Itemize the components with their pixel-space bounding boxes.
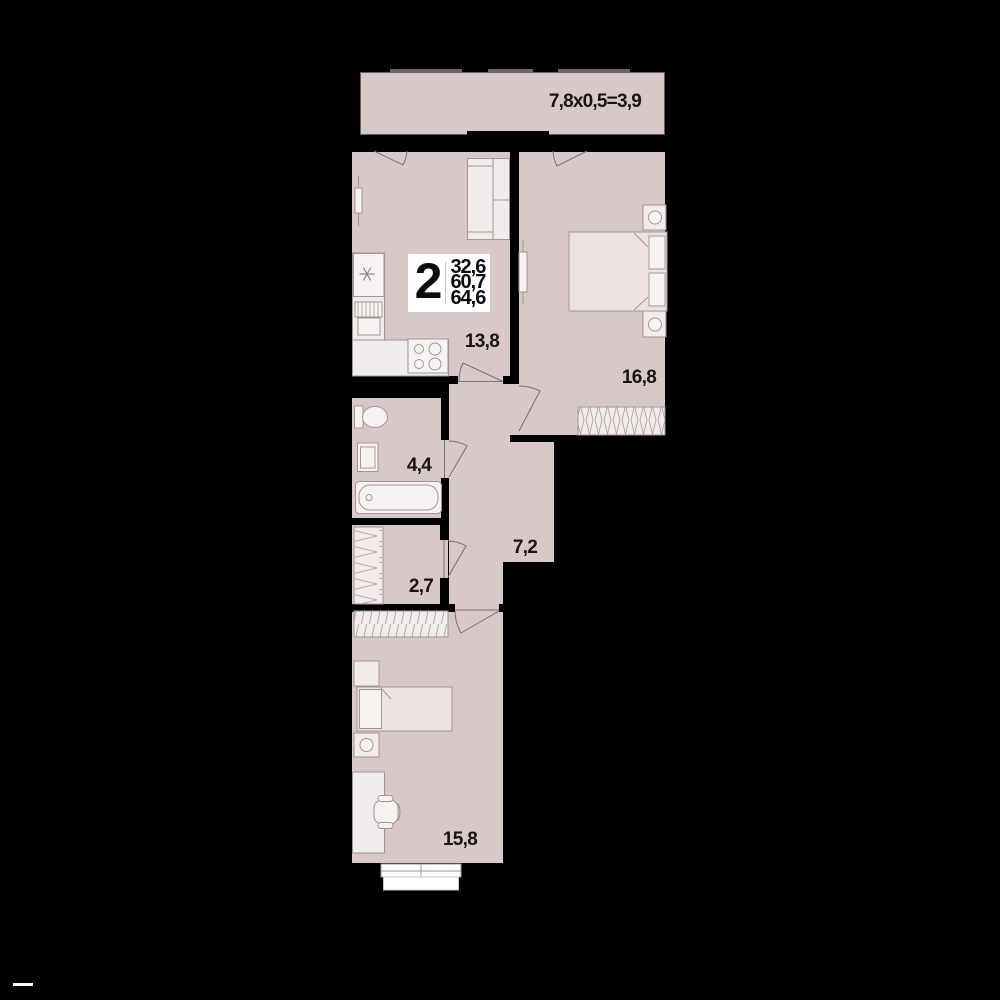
door-arc-bedroom-balcony [553, 151, 587, 166]
scale-mark [13, 983, 33, 986]
wardrobe-hatch [578, 407, 665, 435]
furniture-layer [0, 0, 1000, 1000]
door-arc-storage [448, 541, 466, 577]
kitchen-sink [354, 254, 385, 297]
door-arc-kitchen [459, 363, 502, 381]
pillow [360, 690, 382, 729]
room-label-kitchen: 13,8 [465, 331, 499, 353]
room-label-bedroom: 16,8 [622, 367, 656, 389]
toilet-tank [355, 406, 364, 428]
badge-divider [445, 262, 446, 304]
storage-wardrobe-hatch [354, 527, 383, 604]
room-label-living: 15,8 [443, 829, 477, 851]
nightstand [354, 661, 379, 686]
room-label-hallway: 7,2 [513, 537, 537, 559]
radiator [519, 252, 527, 292]
pillow [649, 273, 665, 306]
stove [408, 339, 448, 373]
hall-wardrobe-hatch [354, 611, 448, 637]
door-arc-living [455, 611, 499, 633]
lamp-icon [649, 211, 662, 224]
door-arc-kitchen-balcony [374, 151, 407, 165]
room-count: 2 [413, 258, 443, 308]
chair-armrest [378, 823, 393, 829]
room-label-bathroom: 4,4 [407, 455, 431, 477]
room-label-storage: 2,7 [409, 576, 433, 598]
chair-armrest [378, 796, 393, 802]
lamp-icon [360, 739, 373, 752]
radiator [355, 188, 362, 213]
bathtub [356, 482, 442, 514]
chair [374, 800, 398, 824]
door-threshold-lines [444, 382, 503, 611]
kitchen-appliance-hatch [355, 302, 382, 317]
sofa [468, 159, 510, 240]
pillow [649, 236, 665, 269]
apartment-info-badge: 2 32,6 60,7 64,6 [408, 254, 490, 312]
balcony-label: 7,8x0,5=3,9 [549, 91, 641, 113]
floorplan-canvas: 2 32,6 60,7 64,6 7,8x0,5=3,9 13,8 16,8 4… [0, 0, 1000, 1000]
door-arc-bathroom [449, 441, 467, 477]
area-total: 64,6 [450, 291, 485, 307]
window-sill [384, 877, 459, 890]
door-arc-bedroom [519, 386, 540, 431]
area-list: 32,6 60,7 64,6 [450, 260, 485, 307]
toilet-bowl [363, 407, 388, 428]
lamp-icon [649, 318, 662, 331]
kitchen-cabinet [358, 318, 380, 335]
